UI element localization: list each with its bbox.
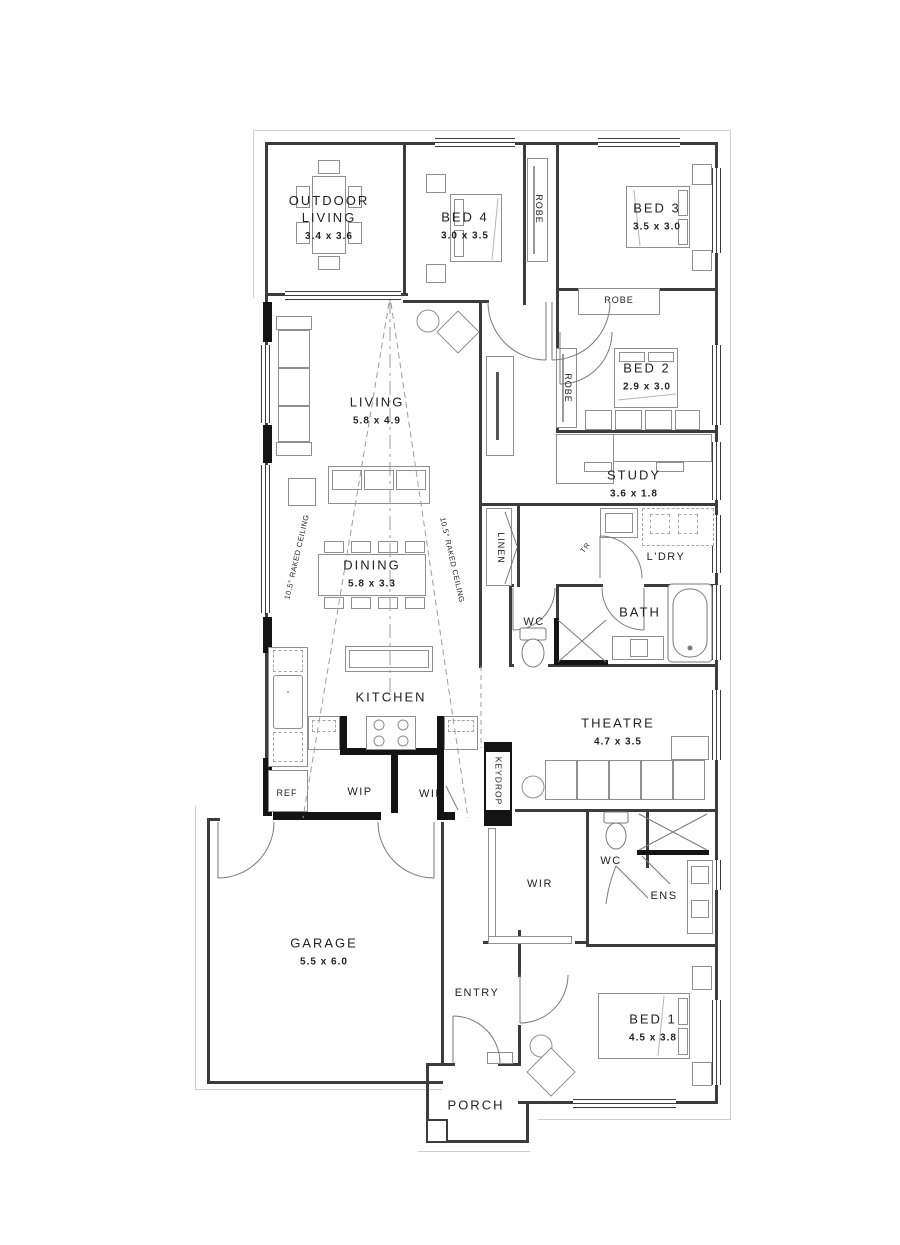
room-dims: 3.5 x 3.0: [633, 220, 681, 233]
room-name: BED 3: [633, 201, 681, 218]
room-label-porch: PORCH: [448, 1098, 505, 1115]
room-dims: 3.4 x 3.6: [278, 230, 380, 243]
room-label-ens: ENS: [650, 889, 677, 903]
room-label-living: LIVING 5.8 x 4.9: [350, 395, 405, 428]
plan-linework: [0, 0, 900, 1245]
room-label-study: STUDY 3.6 x 1.8: [607, 468, 661, 501]
room-label-ref: REF: [277, 788, 298, 800]
cooktop-icon: [374, 720, 408, 746]
room-name: LIVING: [350, 395, 405, 412]
room-label-wir: WIR: [527, 877, 553, 891]
room-dims: 4.5 x 3.8: [629, 1031, 677, 1044]
room-dims: 4.7 x 3.5: [581, 735, 655, 748]
room-label-kitchen: KITCHEN: [355, 690, 426, 707]
room-label-ldry: L'DRY: [647, 550, 686, 564]
room-label-wc-ens: WC: [600, 854, 621, 868]
room-dims: 5.5 x 6.0: [290, 955, 358, 968]
room-name: DINING: [343, 558, 401, 575]
occasional-furniture: [288, 310, 576, 1096]
room-dims: 3.0 x 3.5: [441, 229, 489, 242]
room-label-bed3: BED 3 3.5 x 3.0: [633, 201, 681, 234]
room-label-keydrop: KEYDROP: [492, 757, 503, 806]
bathtub-icon: [668, 584, 712, 662]
room-name: BED 4: [441, 210, 489, 227]
robe-label: ROBE: [532, 194, 544, 224]
room-label-bath: BATH: [619, 605, 661, 622]
room-label-dining: DINING 5.8 x 3.3: [343, 558, 401, 591]
robe-label: ROBE: [561, 373, 573, 403]
room-label-bed2: BED 2 2.9 x 3.0: [623, 361, 671, 394]
robe-label: ROBE: [604, 295, 634, 307]
room-name: GARAGE: [290, 936, 358, 953]
room-name: THEATRE: [581, 716, 655, 733]
room-label-theatre: THEATRE 4.7 x 3.5: [581, 716, 655, 749]
room-label-bed1: BED 1 4.5 x 3.8: [629, 1012, 677, 1045]
room-label-wc-main: WC: [523, 615, 544, 629]
room-label-wil: WIL: [419, 787, 443, 801]
door-arcs: [218, 302, 670, 1063]
room-label-entry: ENTRY: [455, 986, 500, 1000]
room-dims: 2.9 x 3.0: [623, 380, 671, 393]
room-label-bed4: BED 4 3.0 x 3.5: [441, 210, 489, 243]
room-name: OUTDOOR LIVING: [278, 193, 380, 227]
room-label-linen: LINEN: [494, 532, 506, 564]
room-label-outdoor-living: OUTDOOR LIVING 3.4 x 3.6: [278, 193, 380, 243]
room-dims: 5.8 x 3.3: [343, 577, 401, 590]
room-dims: 3.6 x 1.8: [607, 487, 661, 500]
room-dims: 5.8 x 4.9: [350, 414, 405, 427]
room-label-garage: GARAGE 5.5 x 6.0: [290, 936, 358, 969]
bed-fold-lines: [492, 190, 676, 1056]
floor-plan: OUTDOOR LIVING 3.4 x 3.6 BED 4 3.0 x 3.5…: [0, 0, 900, 1245]
room-label-wip: WIP: [347, 785, 372, 799]
room-name: BED 1: [629, 1012, 677, 1029]
room-name: STUDY: [607, 468, 661, 485]
room-name: BED 2: [623, 361, 671, 378]
